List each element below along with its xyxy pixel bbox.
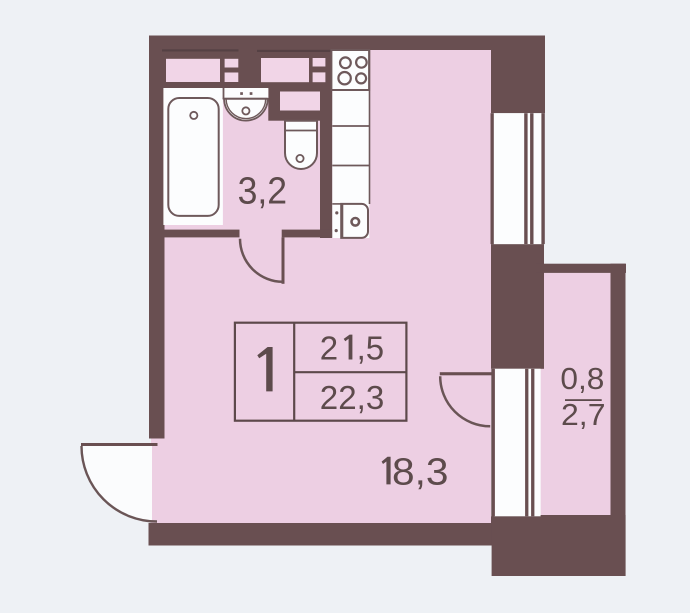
svg-text:,5: ,5 [357,330,385,367]
svg-text:8,3: 8,3 [392,451,449,493]
svg-text:2: 2 [320,330,338,367]
svg-text:3,2: 3,2 [238,171,288,213]
svg-text:22,3: 22,3 [320,379,385,416]
svg-text:2,7: 2,7 [561,397,606,432]
svg-text:0,8: 0,8 [560,361,604,396]
